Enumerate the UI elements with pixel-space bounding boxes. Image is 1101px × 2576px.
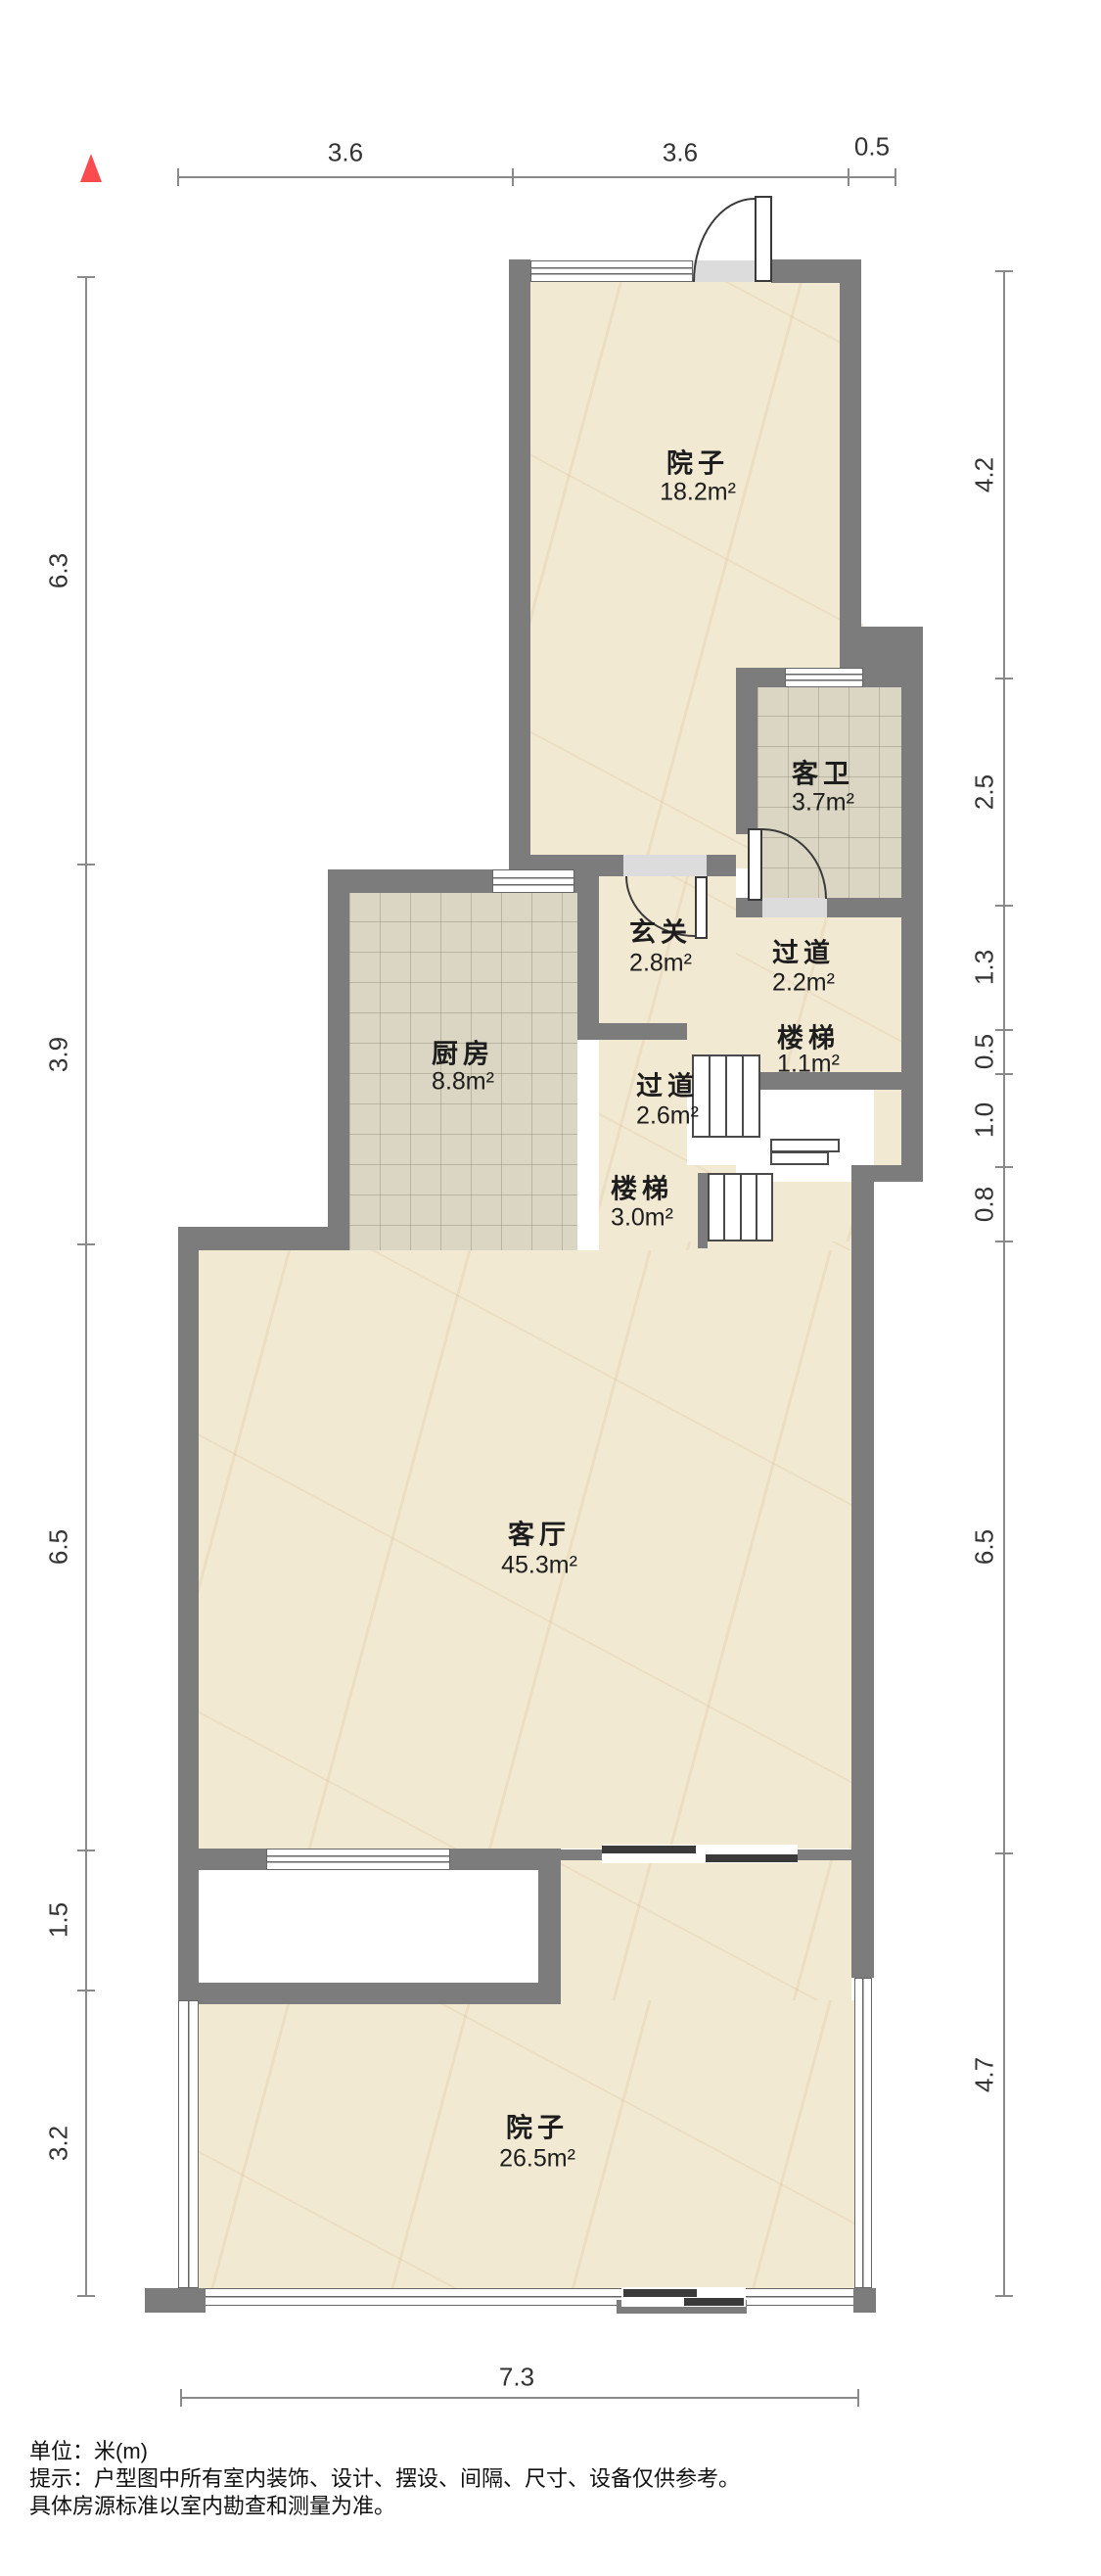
- room-area-stair-mid: 3.0m²: [611, 1204, 673, 1233]
- dim-tick: [995, 678, 1013, 679]
- stair-tread: [770, 1139, 840, 1152]
- dim-label-top-3.6: 3.6: [663, 138, 698, 168]
- room-label-yard-top: 院子: [666, 443, 729, 481]
- dim-tick: [77, 1990, 95, 1991]
- wall: [538, 1870, 561, 1985]
- room-area-guest-bath: 3.7m²: [792, 789, 854, 818]
- dim-tick: [995, 1029, 1013, 1031]
- dim-tick: [857, 2389, 859, 2407]
- wall: [901, 917, 923, 1182]
- dim-tick: [995, 270, 1013, 272]
- wall: [178, 1983, 561, 2004]
- dim-label-left-6.3: 6.3: [44, 553, 74, 588]
- dim-label-right-6.5: 6.5: [970, 1529, 1000, 1565]
- bath-door-leaf: [748, 828, 762, 901]
- gate-door-swing-arc: [693, 198, 755, 282]
- north-arrow-icon: [80, 154, 102, 182]
- dim-tick: [77, 1243, 95, 1245]
- dim-label-left-1.5: 1.5: [44, 1902, 74, 1938]
- room-area-corridor-east: 2.2m²: [772, 969, 835, 998]
- dim-label-left-3.9: 3.9: [44, 1037, 74, 1072]
- dim-label-right-2.5: 2.5: [970, 774, 1000, 810]
- wall: [851, 1182, 874, 1978]
- room-name-corridor-east: 过道: [772, 939, 835, 968]
- wall: [577, 891, 599, 1040]
- room-label-yard-bottom: 院子: [506, 2107, 569, 2145]
- dim-tick: [77, 276, 95, 278]
- stair-tread: [770, 1151, 829, 1165]
- wall: [328, 869, 349, 1250]
- window-kitchen: [492, 869, 574, 893]
- room-name-living-room: 客厅: [508, 1521, 571, 1550]
- room-name-stair-mid: 楼梯: [611, 1175, 673, 1204]
- dim-tick: [995, 1241, 1013, 1242]
- dim-label-right-0.8: 0.8: [970, 1187, 1000, 1222]
- dim-label-left-6.5: 6.5: [44, 1529, 74, 1565]
- room-area-yard-bottom: 26.5m²: [499, 2145, 575, 2174]
- entry-door-leaf: [695, 876, 708, 939]
- wall: [861, 627, 923, 668]
- room-area-entry: 2.8m²: [629, 950, 692, 978]
- dim-tick: [995, 2295, 1013, 2297]
- wall: [178, 1227, 199, 2000]
- dim-label-bottom-7.3: 7.3: [499, 2363, 534, 2393]
- dim-line-left: [85, 277, 87, 2296]
- dim-line-right: [1003, 271, 1005, 2296]
- sliding-door-yard-panel: [684, 2298, 744, 2306]
- wall: [577, 1023, 687, 1040]
- dim-line-bottom: [181, 2397, 858, 2399]
- dim-tick: [848, 168, 849, 186]
- stairs-upper-run: [692, 1054, 760, 1138]
- stairs-lower-run: [708, 1173, 773, 1241]
- window-living: [266, 1849, 450, 1870]
- footer-unit: 单位：米(m): [29, 2438, 740, 2465]
- dim-tick: [995, 1852, 1013, 1854]
- dim-tick: [77, 1850, 95, 1851]
- dim-label-right-4.7: 4.7: [970, 2057, 1000, 2092]
- footer-tip: 提示：户型图中所有室内装饰、设计、摆设、间隔、尺寸、设备仅供参考。: [29, 2465, 740, 2493]
- fence-left: [178, 2000, 199, 2288]
- dim-label-right-4.2: 4.2: [970, 457, 1000, 492]
- dim-label-right-0.5: 0.5: [970, 1034, 1000, 1069]
- fence-right: [854, 1978, 872, 2288]
- wall: [851, 1165, 923, 1182]
- wall: [698, 1173, 708, 1248]
- dim-label-top-3.6: 3.6: [328, 138, 363, 168]
- floor-living-yard-strip: [561, 1859, 851, 2000]
- floor-patch-right: [874, 1090, 901, 1165]
- room-area-yard-top: 18.2m²: [660, 479, 736, 507]
- gate-door-leaf: [755, 196, 772, 282]
- room-name-entry: 玄关: [629, 918, 692, 948]
- dim-line-top: [178, 176, 895, 178]
- bath-threshold: [762, 898, 827, 917]
- dim-tick: [995, 1166, 1013, 1168]
- wall: [840, 259, 861, 668]
- room-label-guest-bath: 客卫: [792, 753, 854, 791]
- sliding-door-living-panel: [706, 1854, 798, 1862]
- wall: [561, 1850, 604, 1860]
- floor-patch-under-step: [773, 1182, 851, 1250]
- room-label-corridor-mid: 过道: [636, 1065, 699, 1103]
- room-name-corridor-mid: 过道: [636, 1072, 699, 1101]
- room-area-stair-east: 1.1m²: [777, 1051, 840, 1079]
- dim-label-top-0.5: 0.5: [854, 132, 890, 163]
- wall: [736, 668, 757, 834]
- dim-label-right-1.3: 1.3: [970, 950, 1000, 985]
- footer-tip2: 具体房源标准以室内勘查和测量为准。: [29, 2493, 740, 2520]
- room-label-kitchen: 厨房: [432, 1033, 494, 1071]
- entry-threshold: [623, 855, 707, 876]
- window-yard-top: [530, 260, 693, 282]
- dim-tick: [77, 2295, 95, 2297]
- window-guest-bath: [785, 668, 863, 687]
- room-name-yard-top: 院子: [666, 449, 729, 479]
- room-area-corridor-mid: 2.6m²: [636, 1102, 699, 1131]
- dim-tick: [77, 864, 95, 866]
- dim-tick: [895, 168, 896, 186]
- room-label-entry: 玄关: [629, 912, 692, 950]
- dim-tick: [177, 168, 179, 186]
- fence-bottom: [199, 2288, 854, 2306]
- room-label-stair-mid: 楼梯: [611, 1168, 673, 1206]
- room-label-corridor-east: 过道: [772, 932, 835, 970]
- dim-tick: [180, 2389, 182, 2407]
- dim-tick: [995, 1073, 1013, 1075]
- wall: [796, 1850, 851, 1860]
- fence-post: [853, 2288, 876, 2313]
- room-label-living-room: 客厅: [508, 1514, 571, 1552]
- room-name-guest-bath: 客卫: [792, 760, 854, 789]
- room-name-stair-east: 楼梯: [777, 1024, 840, 1054]
- dim-tick: [995, 905, 1013, 907]
- floor-plan: 院子18.2m²客卫3.7m²玄关2.8m²过道2.2m²楼梯1.1m²厨房8.…: [0, 0, 1101, 2576]
- room-area-living-room: 45.3m²: [501, 1552, 577, 1580]
- room-area-kitchen: 8.8m²: [432, 1068, 494, 1097]
- wall: [509, 259, 530, 871]
- dim-tick: [512, 168, 514, 186]
- sliding-door-yard-panel: [623, 2289, 697, 2297]
- dim-label-right-1.0: 1.0: [970, 1102, 1000, 1138]
- room-name-yard-bottom: 院子: [506, 2114, 569, 2143]
- dim-label-left-3.2: 3.2: [44, 2126, 74, 2161]
- wall: [178, 1227, 349, 1250]
- wall: [901, 668, 923, 917]
- footer-note: 单位：米(m) 提示：户型图中所有室内装饰、设计、摆设、间隔、尺寸、设备仅供参考…: [29, 2438, 740, 2520]
- sliding-door-living-panel: [602, 1846, 696, 1853]
- fence-post: [145, 2288, 206, 2313]
- room-name-kitchen: 厨房: [432, 1040, 494, 1069]
